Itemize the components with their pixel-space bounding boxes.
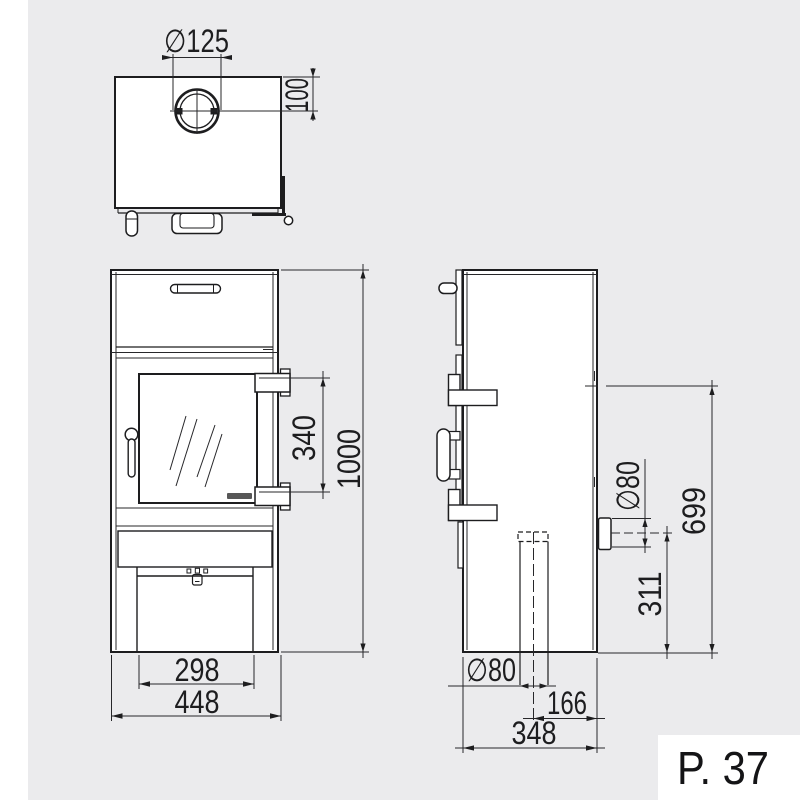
damper-knob <box>439 283 457 294</box>
hinge-top <box>255 369 290 396</box>
dim-label-rear-flue-diameter: ∅80 <box>610 461 646 511</box>
stove-dimension-drawing: ∅125 100 <box>0 0 800 800</box>
drawer-front-edge <box>456 270 462 345</box>
dim-label-hinge-span: 340 <box>286 415 322 461</box>
top-door-handle-end <box>126 211 138 236</box>
ash-drawer-front <box>118 531 272 567</box>
dim-label-top-flue-diameter: ∅125 <box>164 23 229 59</box>
dim-label-total-depth: 348 <box>512 715 557 751</box>
dim-label-inner-width: 298 <box>175 652 220 688</box>
door-glass <box>139 374 257 503</box>
dim-label-upper-outlet-height: 699 <box>676 487 712 535</box>
page-number-card: P. 37 <box>658 735 800 800</box>
dim-label-total-height: 1000 <box>331 429 367 489</box>
brand-logo <box>227 493 252 499</box>
drawer-handle <box>171 285 221 294</box>
page-number-label: P. 37 <box>677 742 769 794</box>
side-view-body <box>463 270 597 652</box>
hinge-bottom <box>255 483 290 510</box>
top-handle <box>172 214 222 234</box>
dim-label-top-flue-offset: 100 <box>279 78 315 112</box>
rear-flue-stub <box>599 518 612 550</box>
dim-label-rear-flue-height: 311 <box>632 572 668 617</box>
ash-front-edge <box>458 522 463 568</box>
dim-label-total-width: 448 <box>175 684 220 720</box>
dim-label-bottom-flue-diameter: ∅80 <box>466 652 516 688</box>
technical-drawing-page: ∅125 100 <box>0 0 800 800</box>
